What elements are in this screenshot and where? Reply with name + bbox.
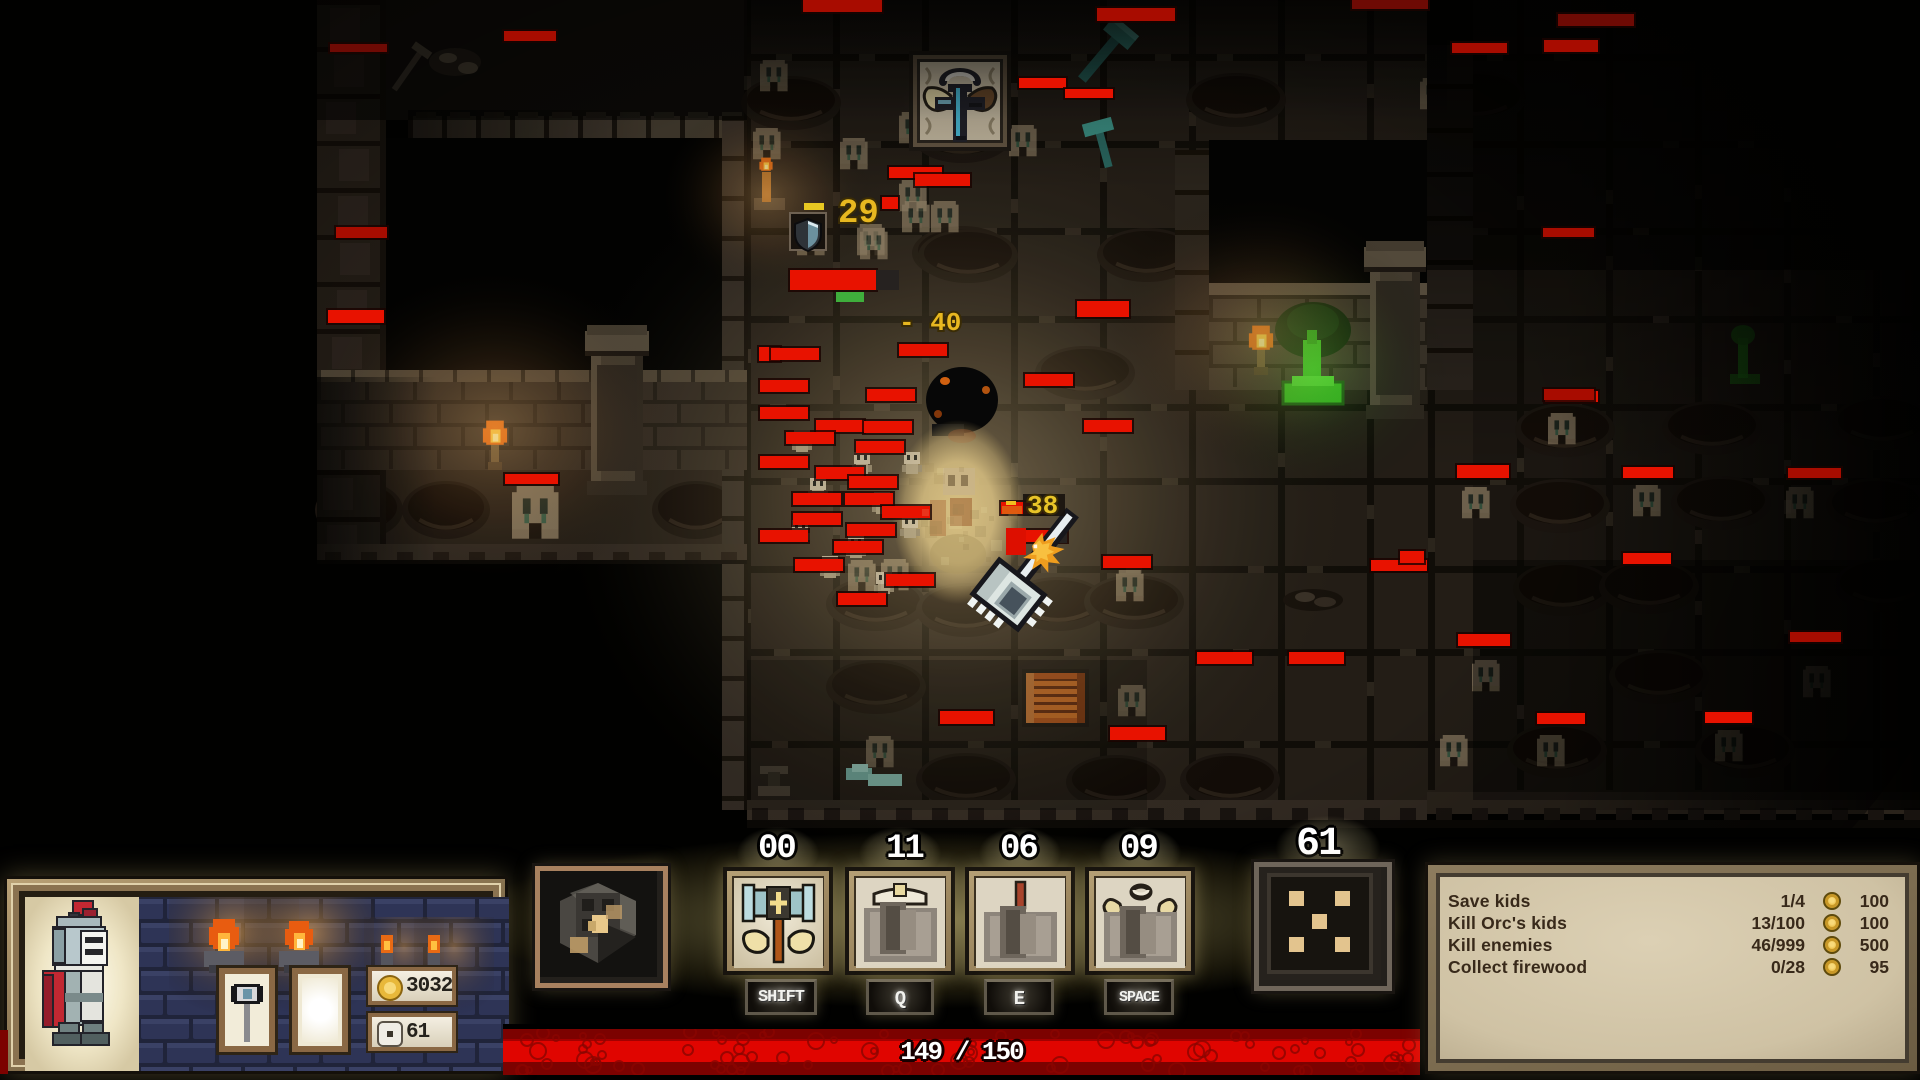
svg-text:29: 29 (838, 195, 879, 233)
svg-text:38: 38 (1027, 491, 1058, 521)
svg-text:- 40: - 40 (899, 308, 961, 338)
